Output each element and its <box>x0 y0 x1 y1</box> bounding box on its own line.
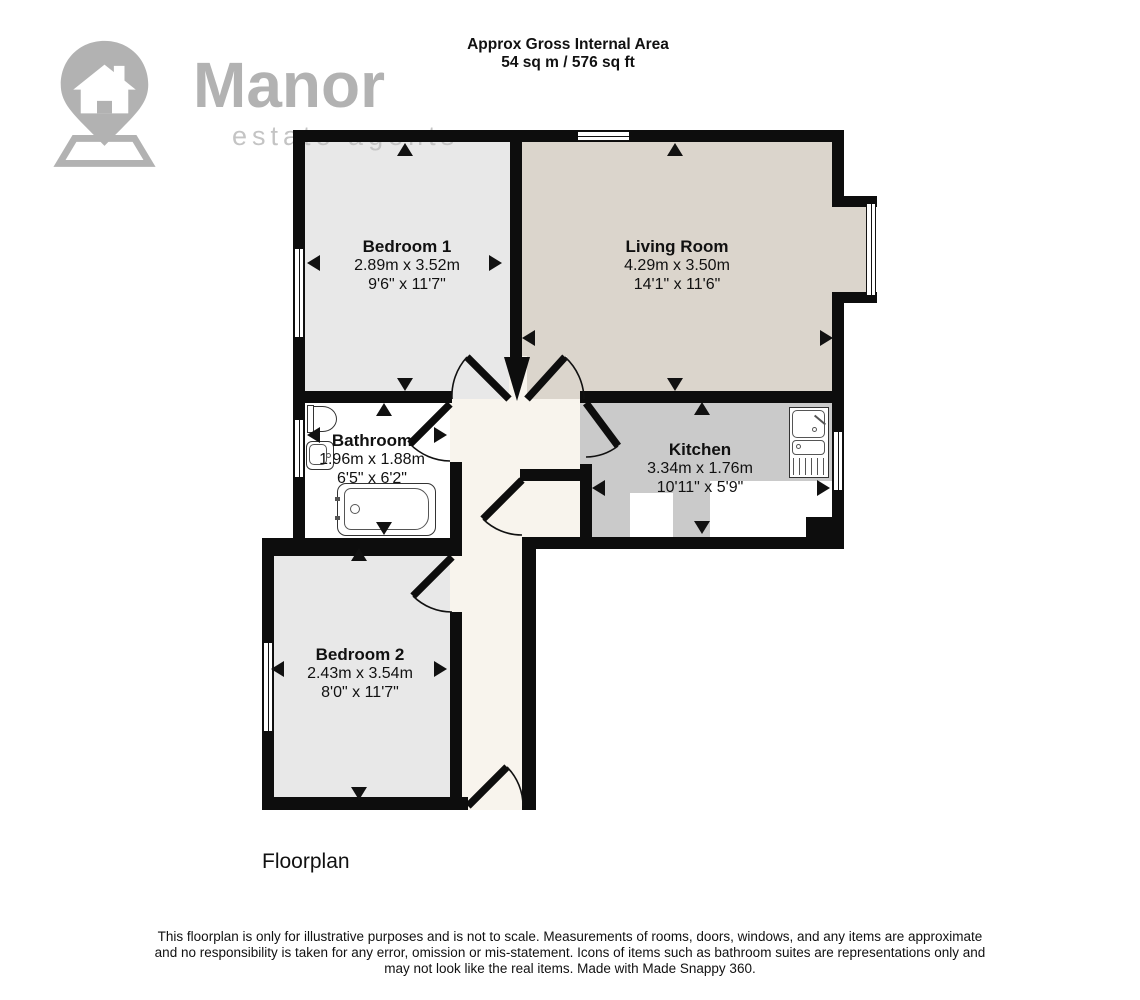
room-dims-imperial: 10'11" x 5'9" <box>620 478 780 497</box>
room-name: Living Room <box>577 237 777 256</box>
measure-arrow-down <box>397 378 413 391</box>
measure-arrow-up <box>694 402 710 415</box>
measure-arrow-up <box>351 548 367 561</box>
room-dims-metric: 2.89m x 3.52m <box>307 256 507 275</box>
floorplan-caption: Floorplan <box>262 850 350 874</box>
measure-arrow-right <box>434 427 447 443</box>
measure-arrow-right <box>820 330 833 346</box>
measure-arrow-down <box>694 521 710 534</box>
disclaimer-line: and no responsibility is taken for any e… <box>70 945 1070 961</box>
measure-arrow-left <box>271 661 284 677</box>
disclaimer-line: may not look like the real items. Made w… <box>70 961 1070 977</box>
measure-arrow-down <box>667 378 683 391</box>
measure-arrow-up <box>397 143 413 156</box>
measure-arrow-left <box>522 330 535 346</box>
room-label-bedroom1: Bedroom 1 2.89m x 3.52m 9'6" x 11'7" <box>307 237 507 294</box>
measure-arrow-down <box>351 787 367 800</box>
measure-arrow-left <box>592 480 605 496</box>
room-dims-imperial: 9'6" x 11'7" <box>307 275 507 294</box>
room-dims-metric: 3.34m x 1.76m <box>620 459 780 478</box>
room-name: Bedroom 2 <box>260 645 460 664</box>
room-label-bedroom2: Bedroom 2 2.43m x 3.54m 8'0" x 11'7" <box>260 645 460 702</box>
room-name: Kitchen <box>620 440 780 459</box>
room-label-kitchen: Kitchen 3.34m x 1.76m 10'11" x 5'9" <box>620 440 780 497</box>
room-dims-metric: 1.96m x 1.88m <box>292 450 452 469</box>
room-dims-metric: 4.29m x 3.50m <box>577 256 777 275</box>
measure-arrow-left <box>307 255 320 271</box>
room-dims-imperial: 6'5" x 6'2" <box>292 469 452 488</box>
room-dims-imperial: 14'1" x 11'6" <box>577 275 777 294</box>
measure-arrow-right <box>489 255 502 271</box>
gross-internal-area-header: Approx Gross Internal Area 54 sq m / 576… <box>418 36 718 72</box>
room-dims-metric: 2.43m x 3.54m <box>260 664 460 683</box>
measure-arrow-up <box>667 143 683 156</box>
measure-arrow-right <box>817 480 830 496</box>
room-label-living-room: Living Room 4.29m x 3.50m 14'1" x 11'6" <box>577 237 777 294</box>
floorplan-page: Approx Gross Internal Area 54 sq m / 576… <box>0 0 1140 1000</box>
measure-arrow-up <box>376 403 392 416</box>
room-name: Bedroom 1 <box>307 237 507 256</box>
room-dims-imperial: 8'0" x 11'7" <box>260 683 460 702</box>
area-value: 54 sq m / 576 sq ft <box>418 54 718 72</box>
disclaimer-text: This floorplan is only for illustrative … <box>70 929 1070 977</box>
measure-arrow-right <box>434 661 447 677</box>
doors-layer <box>0 0 1140 1000</box>
disclaimer-line: This floorplan is only for illustrative … <box>70 929 1070 945</box>
area-title: Approx Gross Internal Area <box>418 36 718 54</box>
measure-arrow-down <box>376 522 392 535</box>
measure-arrow-left <box>307 427 320 443</box>
